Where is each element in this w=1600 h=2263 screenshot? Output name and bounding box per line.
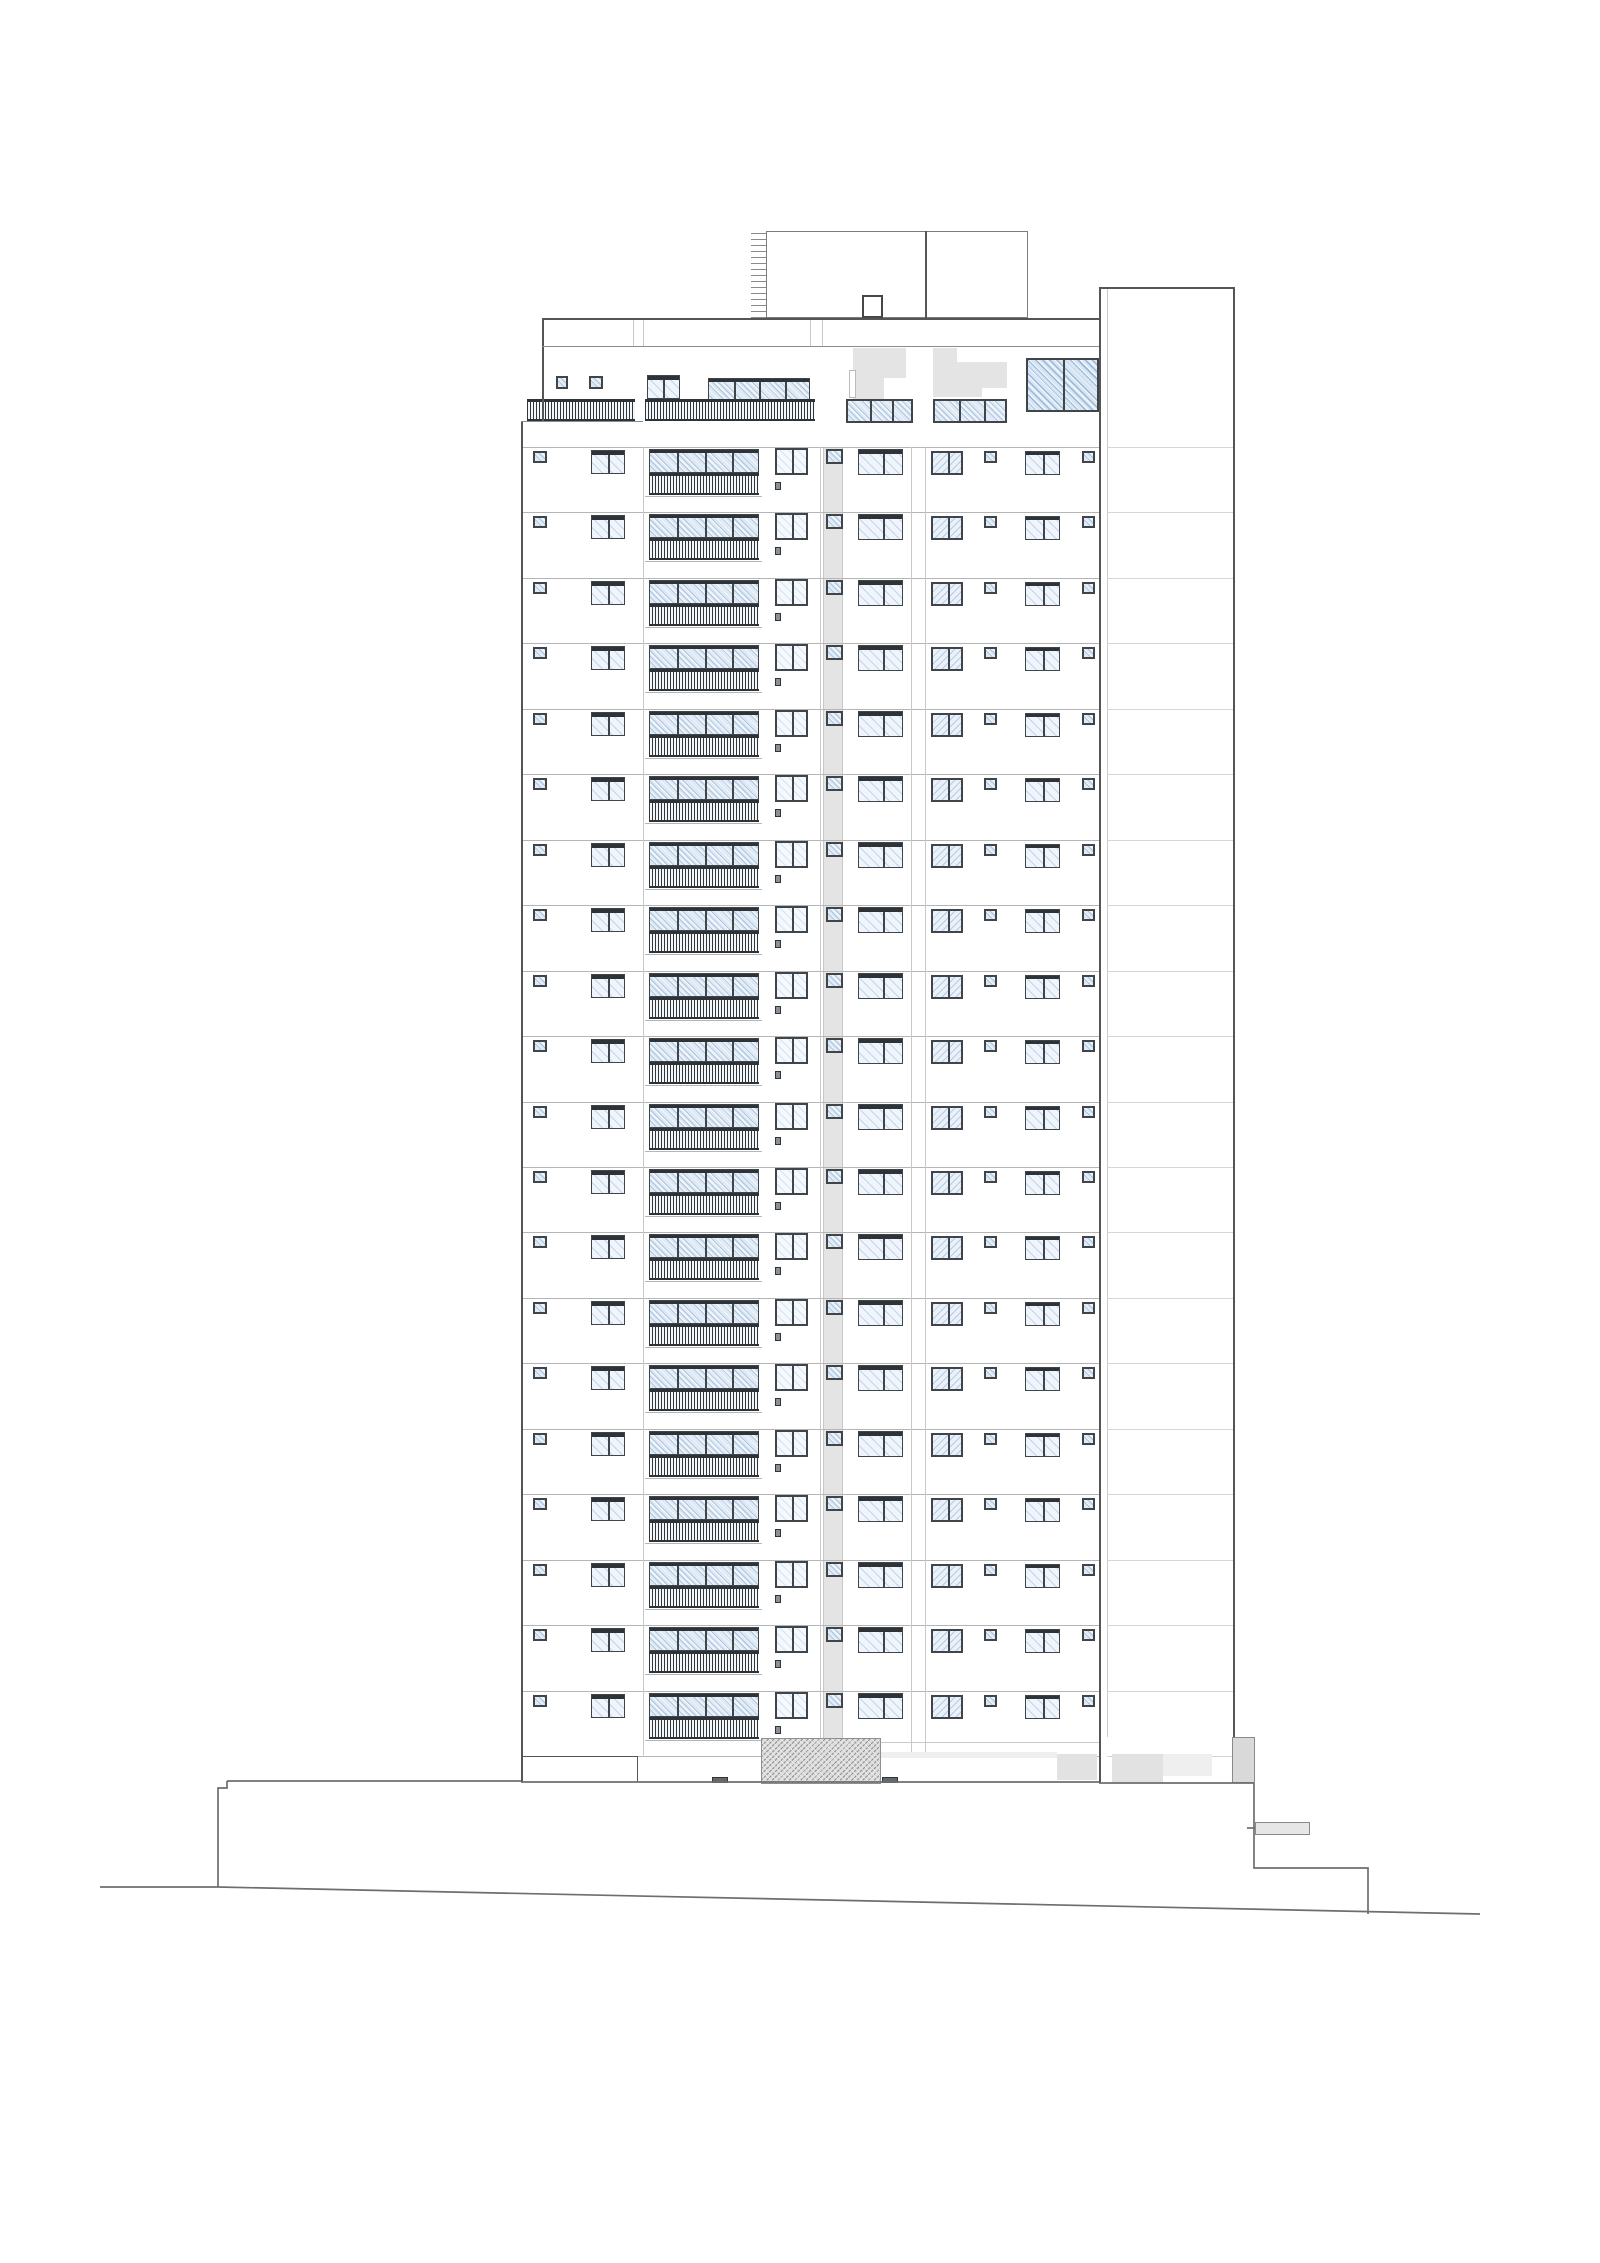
site-ground-lines [0,0,1600,2263]
podium-right-edge [1254,1783,1368,1914]
podium-left-step [218,1781,227,1887]
architectural-elevation-canvas [0,0,1600,2263]
ground-line-slope [218,1887,1480,1914]
